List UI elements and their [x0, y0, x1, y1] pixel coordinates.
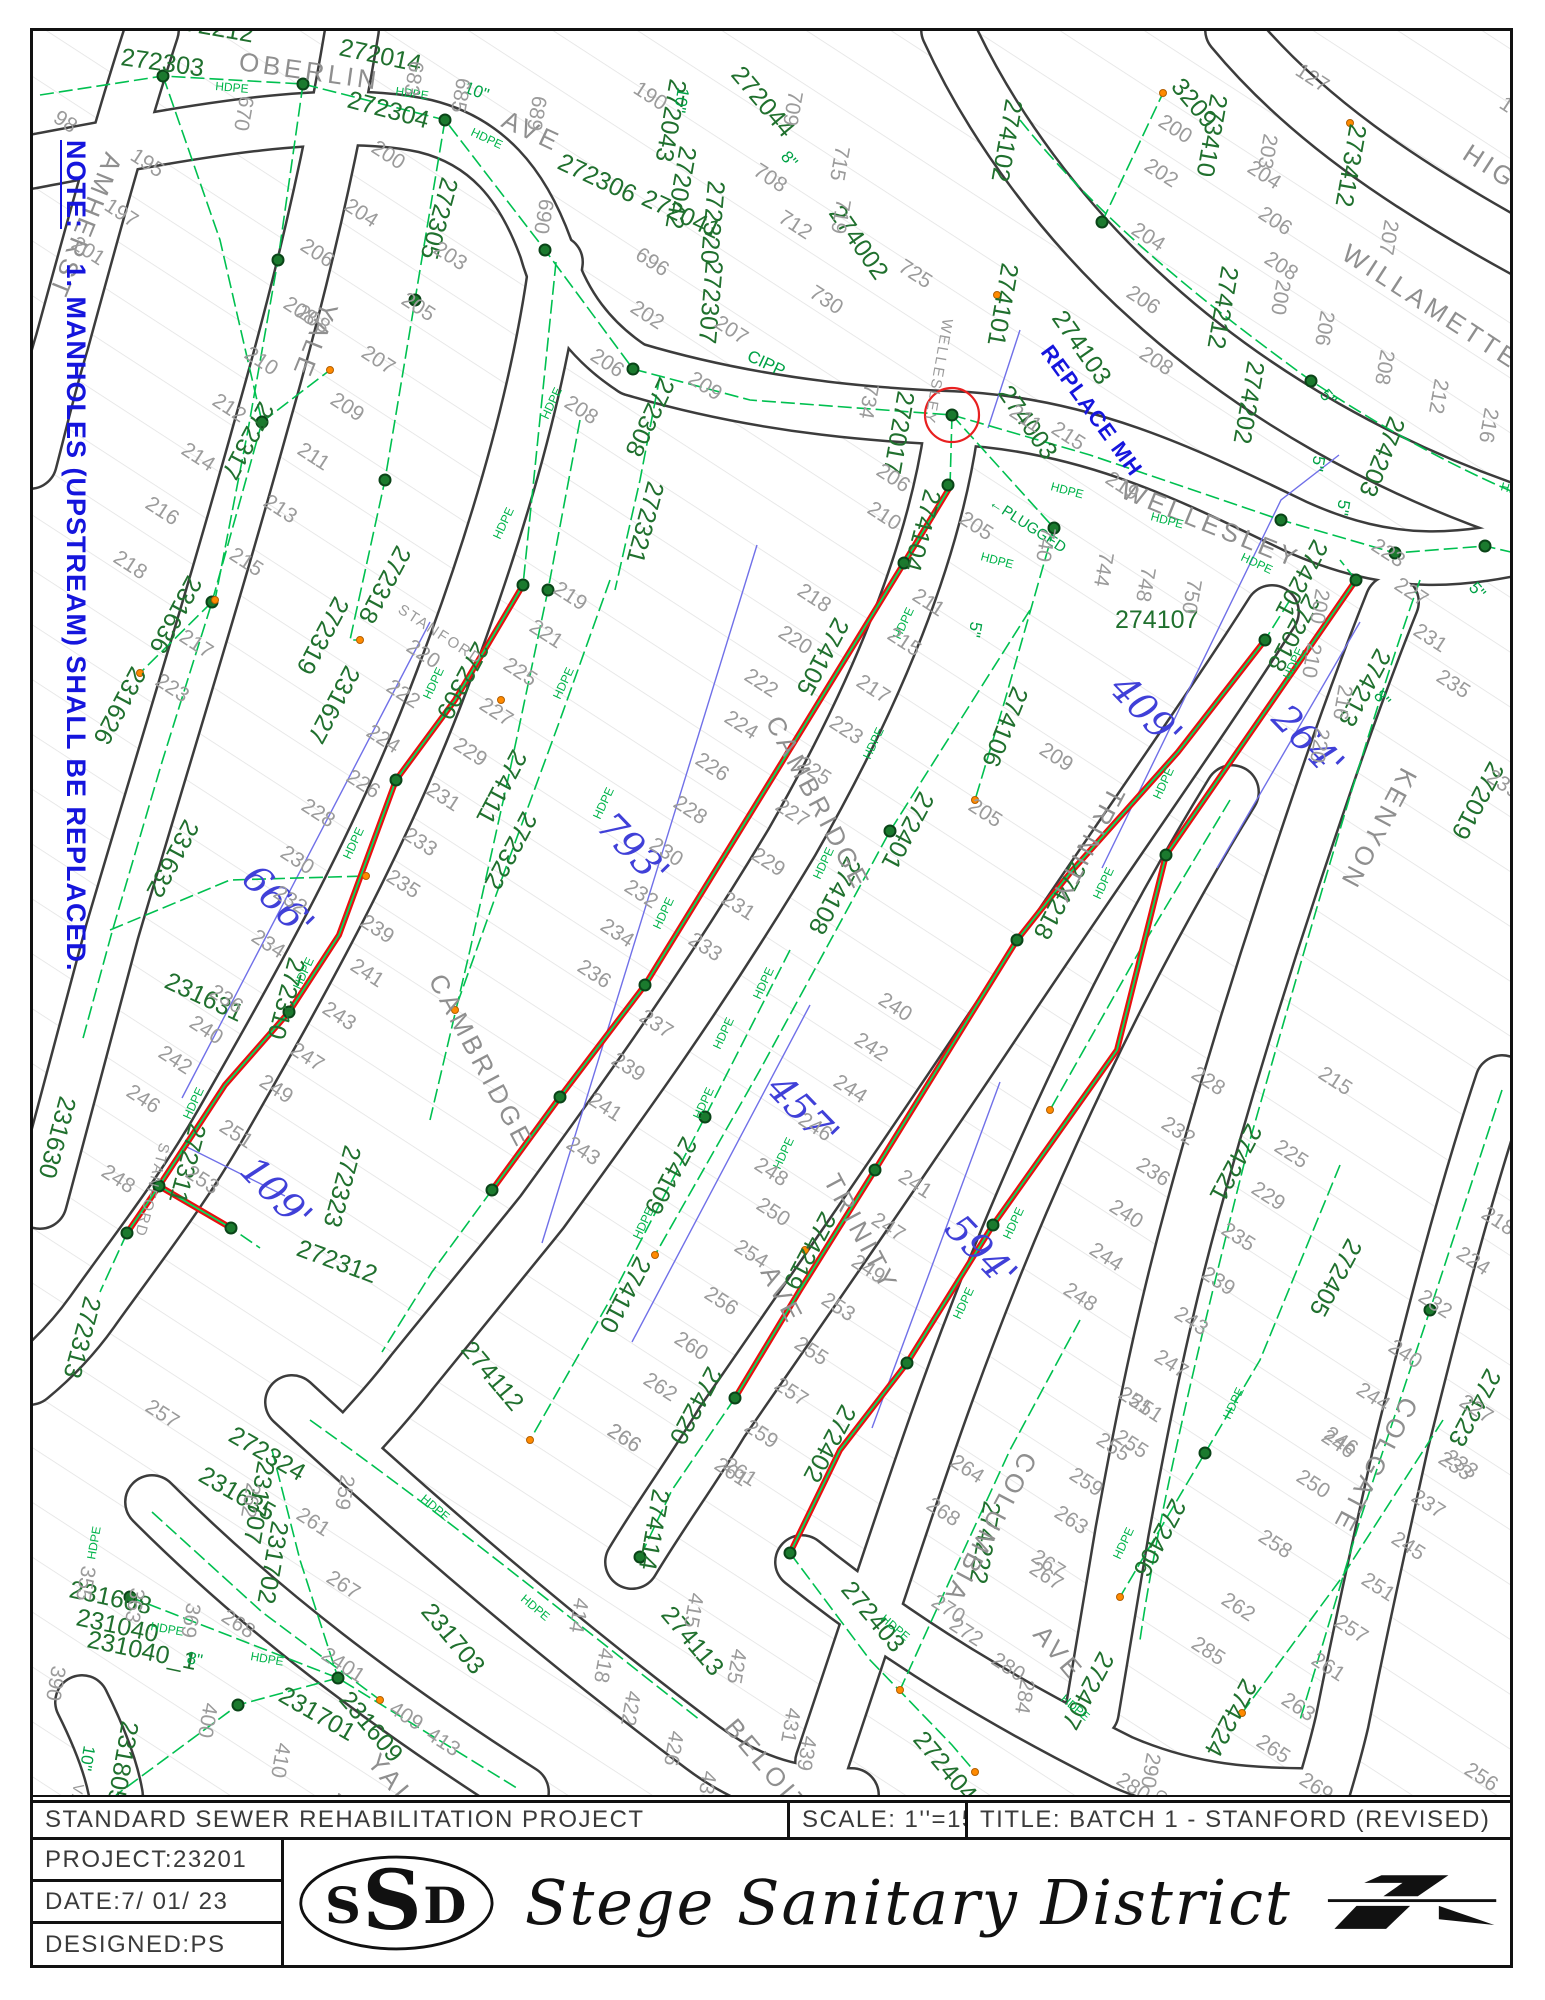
manhole-marker-icon [947, 410, 958, 421]
map-note: NOTE: 1. MANHOLES (UPSTREAM) SHALL BE RE… [60, 140, 91, 1260]
cleanout-marker-icon [1047, 1107, 1054, 1114]
titleblock-scale: SCALE: 1''=150' [787, 1800, 968, 1840]
cleanout-marker-icon [1117, 1594, 1124, 1601]
manhole-marker-icon [870, 1165, 881, 1176]
z-arrow-logo-icon [1326, 1868, 1498, 1938]
note-heading: NOTE: [61, 140, 91, 229]
manhole-marker-icon [518, 580, 529, 591]
titleblock-project-number: PROJECT:23201 [30, 1837, 284, 1882]
cleanout-marker-icon [377, 1697, 384, 1704]
manhole-marker-icon [1012, 935, 1023, 946]
manhole-marker-icon [555, 1092, 566, 1103]
manhole-marker-icon [1260, 635, 1271, 646]
note-body: 1. MANHOLES (UPSTREAM) SHALL BE REPLACED… [61, 264, 91, 972]
map-text-label: HDPE [215, 79, 249, 96]
cleanout-marker-icon [327, 367, 334, 374]
manhole-marker-icon [785, 1548, 796, 1559]
cleanout-marker-icon [363, 873, 370, 880]
manhole-marker-icon [540, 245, 551, 256]
map-text-label: 5" [1307, 454, 1328, 473]
titleblock-project-name: STANDARD SEWER REHABILITATION PROJECT [30, 1800, 790, 1840]
manhole-marker-icon [226, 1223, 237, 1234]
manhole-marker-icon [233, 1700, 244, 1711]
manhole-marker-icon [122, 1228, 133, 1239]
cleanout-marker-icon [972, 1769, 979, 1776]
manhole-marker-icon [1480, 541, 1491, 552]
manhole-marker-icon [391, 775, 402, 786]
manhole-marker-icon [273, 255, 284, 266]
manhole-marker-icon [640, 980, 651, 991]
titleblock-title: TITLE: BATCH 1 - STANFORD (REVISED) [965, 1800, 1513, 1840]
svg-text:SSD: SSD [325, 1852, 468, 1948]
manhole-marker-icon [730, 1393, 741, 1404]
manhole-marker-icon [1161, 850, 1172, 861]
cleanout-marker-icon [357, 637, 364, 644]
manhole-marker-icon [1306, 376, 1317, 387]
manhole-marker-icon [1200, 1448, 1211, 1459]
titleblock-designer: DESIGNED:PS [30, 1921, 284, 1968]
agency-name: Stege Sanitary District [525, 1866, 1292, 1939]
manhole-marker-icon [902, 1358, 913, 1369]
manhole-marker-icon [1097, 217, 1108, 228]
ssd-logo-icon: SSD [296, 1848, 497, 1958]
manhole-marker-icon [487, 1185, 498, 1196]
titleblock-date: DATE:7/ 01/ 23 [30, 1879, 284, 1924]
sewer-rehab-drawing: 2722122723032720142723042723052723062720… [0, 0, 1545, 2000]
manhole-marker-icon [1276, 515, 1287, 526]
cleanout-marker-icon [897, 1687, 904, 1694]
manhole-marker-icon [943, 480, 954, 491]
titleblock-agency: SSD Stege Sanitary District [281, 1837, 1513, 1968]
manhole-marker-icon [1351, 575, 1362, 586]
map-text-label: 5" [964, 620, 985, 639]
cleanout-marker-icon [527, 1437, 534, 1444]
manhole-marker-icon [440, 115, 451, 126]
cleanout-marker-icon [652, 1252, 659, 1259]
manhole-marker-icon [380, 475, 391, 486]
manhole-marker-icon [628, 364, 639, 375]
cleanout-marker-icon [212, 597, 219, 604]
map-canvas: 2722122723032720142723042723052723062720… [30, 28, 1513, 1797]
map-text-label: 5" [1332, 498, 1353, 517]
